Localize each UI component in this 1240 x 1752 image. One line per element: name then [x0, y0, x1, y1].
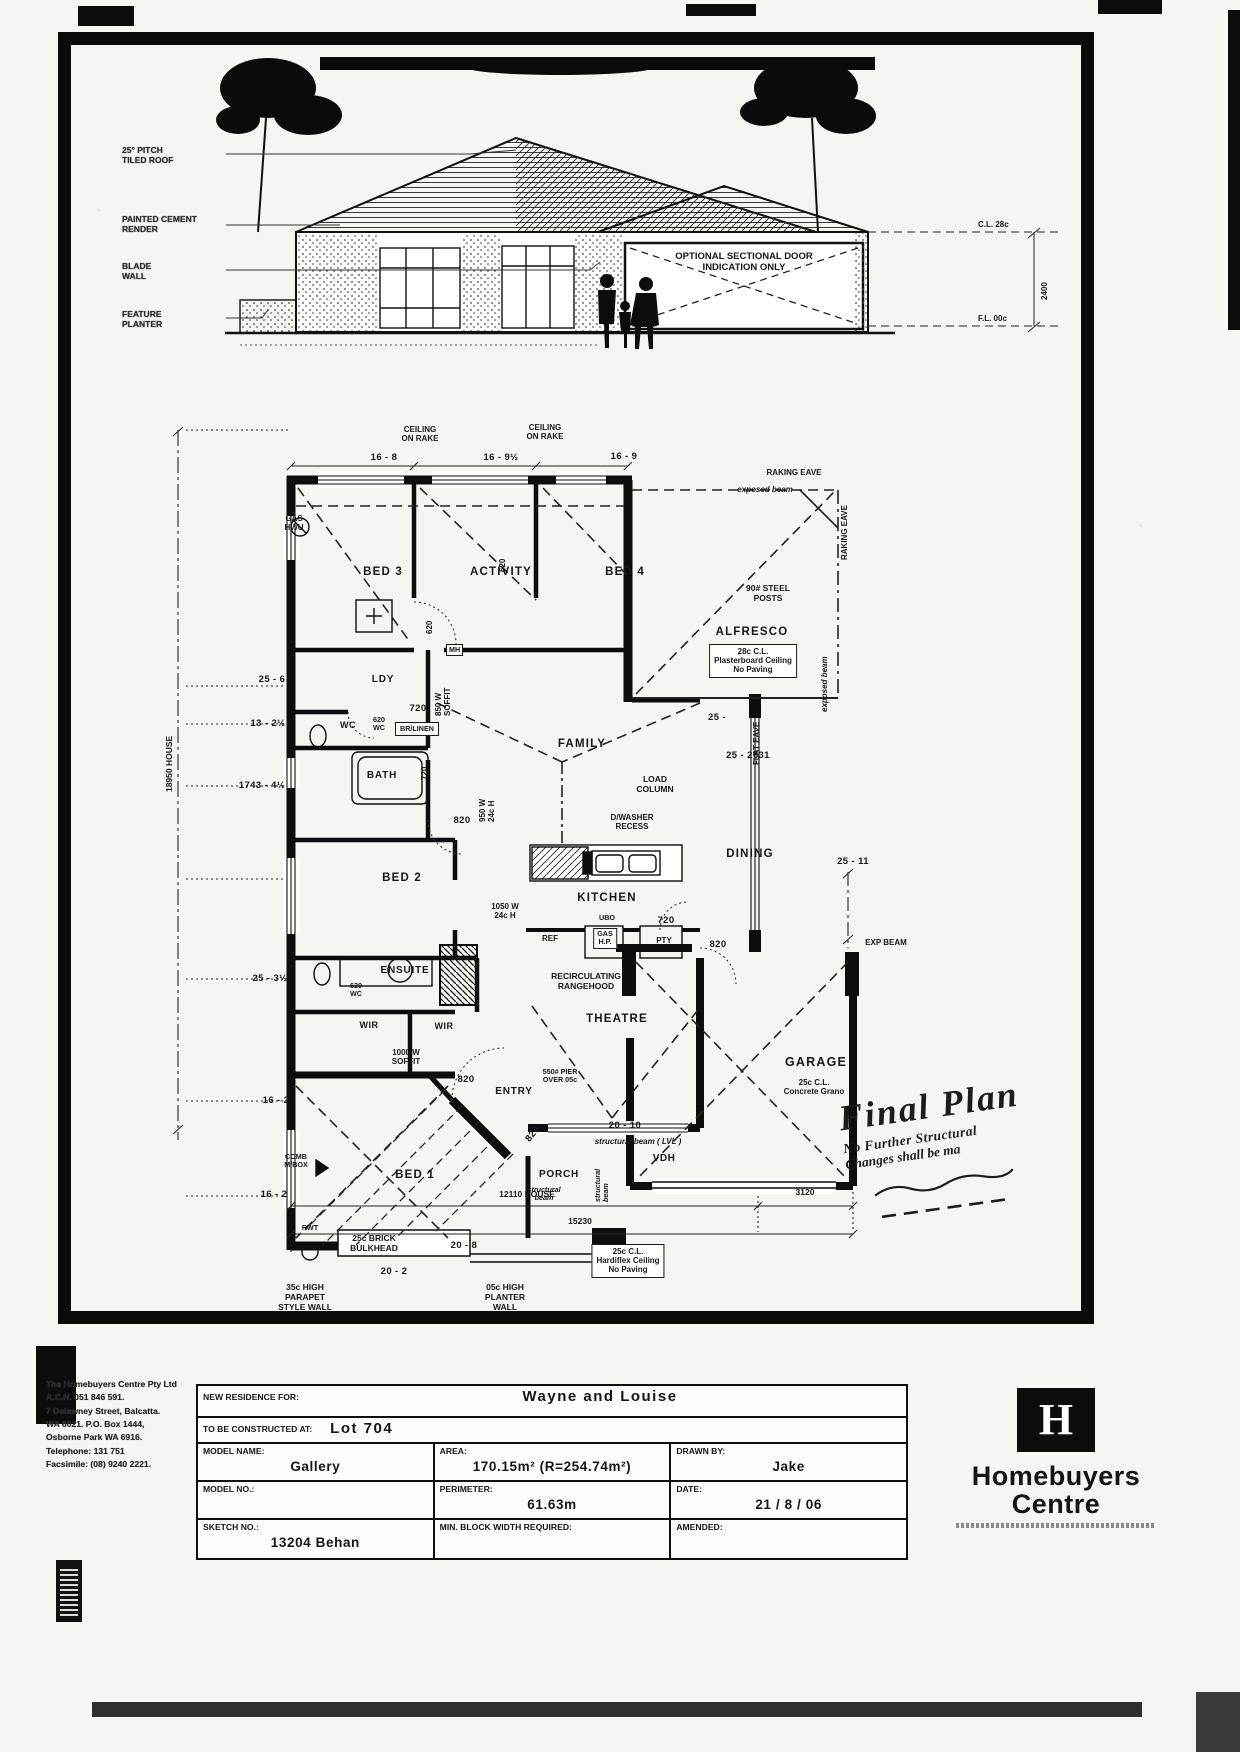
dim-12110-house: 12110 HOUSE [499, 1190, 555, 1200]
model-name-label: MODEL NAME: [203, 1446, 428, 1456]
room-label-kitchen: KITCHEN [577, 892, 637, 905]
label-flat-eave: FLAT EAVE [752, 722, 761, 765]
room-label-entry: ENTRY [495, 1086, 533, 1098]
label-dishwasher-recess: D/WASHER RECESS [610, 813, 653, 831]
room-label-garage: GARAGE [785, 1055, 847, 1069]
dim-20-10: 20 - 10 [609, 1121, 641, 1132]
cell-drawn-by: DRAWN BY: Jake [670, 1443, 907, 1481]
door-620-wc1: 620 WC [373, 716, 385, 733]
label-raking-eave-h: RAKING EAVE [767, 468, 822, 477]
dim-16-9: 16 - 9 [611, 452, 638, 463]
elevation-label-feature-planter: FEATURE PLANTER [122, 310, 162, 330]
room-label-alfresco: ALFRESCO [716, 626, 789, 639]
cell-amended: AMENDED: [670, 1519, 907, 1559]
min-block-value [440, 1535, 665, 1550]
door-720-a: 720 [409, 704, 426, 715]
label-gas-hwu: GAS HWU [284, 514, 303, 532]
min-block-label: MIN. BLOCK WIDTH REQUIRED: [440, 1522, 665, 1532]
title-block-table: NEW RESIDENCE FOR: Wayne and Louise TO B… [196, 1384, 908, 1560]
date-label: DATE: [676, 1484, 901, 1494]
dim-16-2-a: 16 - 2 [263, 1096, 290, 1107]
company-line: WA 6021. P.O. Box 1444, [46, 1418, 196, 1431]
dim-25: 25 - [708, 713, 726, 724]
room-label-family: FAMILY [558, 738, 606, 751]
label-exposed-beam-v: exposed beam [820, 656, 829, 712]
company-line: Telephone: 131 751 [46, 1445, 196, 1458]
cell-residence: NEW RESIDENCE FOR: Wayne and Louise [197, 1385, 907, 1417]
logo-tagline-illegible [956, 1523, 1156, 1528]
label-mh: MH [446, 644, 463, 656]
door-820-c: 820 [457, 1075, 474, 1086]
elevation-label-floor-level: F.L. 00c [978, 314, 1007, 323]
door-720-v: 720 [420, 767, 429, 780]
model-no-label: MODEL NO.: [203, 1484, 428, 1494]
stamp-scribble [874, 1169, 1017, 1217]
label-ref: REF [542, 934, 558, 943]
logo-name-line-1: Homebuyers [920, 1462, 1192, 1490]
cell-min-block-width: MIN. BLOCK WIDTH REQUIRED: [434, 1519, 671, 1559]
model-name-value: Gallery [203, 1459, 428, 1474]
label-window-950: 950 W 24c H [478, 799, 496, 822]
sketch-value: 13204 Behan [203, 1535, 428, 1550]
room-label-bed-2: BED 2 [382, 872, 422, 885]
dim-1743-4half: 1743 - 4½ [239, 781, 285, 792]
room-label-porch: PORCH [539, 1169, 579, 1181]
label-comb-mbox: COMB M/BOX [284, 1153, 308, 1170]
paper-sheet: 25° PITCH TILED ROOF PAINTED CEMENT REND… [0, 0, 1240, 1752]
drawn-by-value: Jake [676, 1459, 901, 1474]
amended-label: AMENDED: [676, 1522, 901, 1532]
perimeter-label: PERIMETER: [440, 1484, 665, 1494]
label-soffit-850: 850 W SOFFIT [434, 688, 452, 716]
company-info: The Homebuyers Centre Pty Ltd A.C.N. 051… [46, 1378, 196, 1471]
room-label-bed-1: BED 1 [395, 1169, 435, 1182]
company-line: Osborne Park WA 6916. [46, 1431, 196, 1444]
label-br-linen: BR/LINEN [395, 722, 439, 736]
room-label-ldy: LDY [372, 674, 394, 686]
label-vdh: VDH [653, 1153, 676, 1165]
label-parapet-wall: 35c HIGH PARAPET STYLE WALL [278, 1283, 332, 1312]
residence-label: NEW RESIDENCE FOR: [203, 1392, 299, 1402]
label-recirculating-rangehood: RECIRCULATING RANGEHOOD [551, 972, 621, 992]
dim-13-2half: 13 - 2½ [250, 719, 285, 730]
cell-model-no: MODEL NO.: [197, 1481, 434, 1519]
drawn-by-label: DRAWN BY: [676, 1446, 901, 1456]
dim-16-8: 16 - 8 [371, 453, 398, 464]
note-porch-ceiling: 25c C.L. Hardiflex Ceiling No Paving [591, 1244, 664, 1278]
elevation-label-sectional-door: OPTIONAL SECTIONAL DOOR INDICATION ONLY [675, 252, 812, 274]
company-line: 7 Delawney Street, Balcatta. [46, 1405, 196, 1418]
cell-constructed-at: TO BE CONSTRUCTED AT: Lot 704 [197, 1417, 907, 1443]
residence-value: Wayne and Louise [299, 1388, 901, 1405]
door-820-b: 820 [709, 940, 726, 951]
room-label-bed-3: BED 3 [363, 566, 403, 579]
cell-sketch-no: SKETCH NO.: 13204 Behan [197, 1519, 434, 1559]
label-pantry: PTY [656, 936, 672, 945]
dim-20-8: 20 - 8 [451, 1241, 478, 1252]
constructed-label: TO BE CONSTRUCTED AT: [203, 1424, 312, 1434]
amended-value [676, 1535, 901, 1550]
elevation-label-render: PAINTED CEMENT RENDER [122, 215, 197, 235]
door-820-a: 820 [453, 816, 470, 827]
label-soffit-1000: 1000 W SOFFIT [392, 1048, 420, 1066]
note-alfresco-ceiling: 28c C.L. Plasterboard Ceiling No Paving [709, 644, 797, 678]
cell-date: DATE: 21 / 8 / 06 [670, 1481, 907, 1519]
door-620-a: 620 [425, 621, 434, 634]
elevation-label-roof-pitch: 25° PITCH TILED ROOF [122, 146, 173, 166]
constructed-value: Lot 704 [312, 1420, 901, 1437]
label-exposed-beam-h: exposed beam [737, 485, 793, 494]
dim-16-2-b: 16 - 2 [261, 1190, 288, 1201]
homebuyers-centre-logo: H Homebuyers Centre [920, 1388, 1192, 1556]
perimeter-value: 61.63m [440, 1497, 665, 1512]
sketch-label: SKETCH NO.: [203, 1522, 428, 1532]
elevation-house [225, 138, 1058, 349]
cell-area: AREA: 170.15m² (R=254.74m²) [434, 1443, 671, 1481]
label-ceiling-on-rake-2: CEILING ON RAKE [527, 423, 564, 441]
door-620-b: 620 [498, 559, 507, 572]
label-exp-beam: EXP BEAM [865, 938, 907, 947]
area-label: AREA: [440, 1446, 665, 1456]
scanned-floor-plan-sheet: { "elevation": { "labels": { "pitch": "2… [0, 0, 1240, 1752]
dim-25-11: 25 - 11 [837, 857, 869, 868]
label-steel-posts: 90# STEEL POSTS [746, 584, 790, 604]
elevation-label-ceiling-level: C.L. 28c [978, 220, 1009, 229]
room-label-ensuite: ENSUITE [381, 965, 430, 977]
label-gas-hotplate: GAS H.P. [593, 928, 617, 949]
model-no-value [203, 1497, 428, 1512]
elevation-dimensions [868, 228, 1058, 332]
company-line: Facsimile: (08) 9240 2221. [46, 1458, 196, 1471]
elevation-label-blade-wall: BLADE WALL [122, 262, 151, 282]
cell-perimeter: PERIMETER: 61.63m [434, 1481, 671, 1519]
label-ceiling-on-rake-1: CEILING ON RAKE [402, 425, 439, 443]
elevation-label-height-2400: 2400 [1040, 282, 1049, 300]
label-structural-beam-lvl: structural beam ( LVL ) [595, 1137, 682, 1146]
dim-3120: 3120 [796, 1188, 815, 1198]
room-label-dining: DINING [726, 848, 773, 861]
label-rwt: RWT [302, 1224, 318, 1232]
dim-20-2: 20 - 2 [381, 1267, 408, 1278]
dim-16-9half: 16 - 9½ [483, 453, 518, 464]
label-ubo: UBO [599, 914, 615, 922]
room-label-wir-1: WIR [360, 1020, 379, 1030]
dim-25-2631: 25 - 2631 [726, 751, 770, 762]
quality-stamp-icon [56, 1560, 82, 1622]
label-raking-eave-v: RAKING EAVE [840, 505, 849, 560]
dim-18950-house: 18950 HOUSE [165, 736, 175, 792]
logo-monogram-icon: H [1017, 1388, 1095, 1452]
dim-25-6: 25 - 6 [259, 675, 286, 686]
door-720-b: 720 [657, 916, 674, 927]
dim-25-3half: 25 - 3½ [252, 974, 287, 985]
dimension-lines [173, 427, 857, 1252]
label-structural-beam-v: structural beam [594, 1169, 611, 1202]
area-value: 170.15m² (R=254.74m²) [440, 1459, 665, 1474]
room-label-bed-4: BED 4 [605, 566, 645, 579]
room-label-wir-2: WIR [435, 1021, 454, 1031]
label-load-column: LOAD COLUMN [636, 775, 673, 795]
door-620-wc2: 620 WC [350, 982, 362, 999]
company-line: The Homebuyers Centre Pty Ltd [46, 1378, 196, 1391]
dim-15230: 15230 [568, 1217, 592, 1227]
room-label-bath: BATH [367, 770, 397, 782]
label-window-1050: 1050 W 24c H [491, 902, 519, 920]
room-label-wc-1: WC [340, 720, 356, 730]
note-garage-ceiling: 25c C.L. Concrete Grano [784, 1078, 844, 1096]
cell-model-name: MODEL NAME: Gallery [197, 1443, 434, 1481]
label-planter-wall: 05c HIGH PLANTER WALL [485, 1283, 525, 1312]
company-line: A.C.N. 051 846 591. [46, 1391, 196, 1404]
room-label-theatre: THEATRE [586, 1013, 648, 1026]
logo-name-line-2: Centre [920, 1490, 1192, 1518]
label-pier-550: 550# PIER OVER 05c [543, 1068, 578, 1085]
label-brick-bulkhead: 25c BRICK BULKHEAD [350, 1234, 398, 1254]
date-value: 21 / 8 / 06 [676, 1497, 901, 1512]
